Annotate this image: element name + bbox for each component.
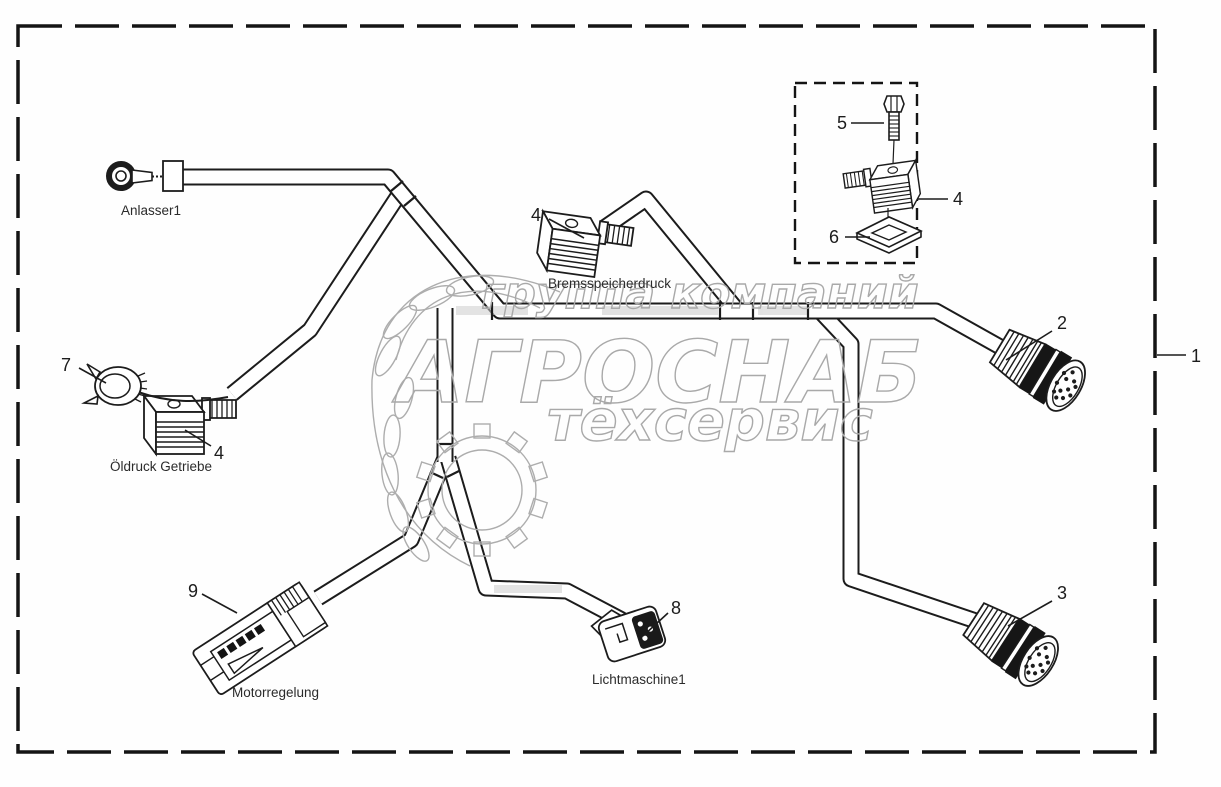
watermark-text-service: тёхсервис	[547, 389, 873, 454]
callout-3: 3	[1057, 583, 1067, 603]
callout-1: 1	[1191, 346, 1201, 366]
ring-terminal-anlasser	[109, 161, 183, 191]
callout-5: 5	[837, 113, 847, 133]
label-bremsspeicherdruck: Bremsspeicherdruck	[548, 276, 671, 291]
callout-7: 7	[61, 355, 71, 375]
label-motorregelung: Motorregelung	[232, 685, 319, 700]
detail-valve-connector-4	[843, 160, 922, 216]
parts-diagram-page: группа компаний АГРОСНАБ тёхсервис 1 2 3…	[0, 0, 1221, 787]
callout-6: 6	[829, 227, 839, 247]
callout-4-detail: 4	[953, 189, 963, 209]
label-anlasser1: Anlasser1	[121, 203, 181, 218]
detail-seal-6	[857, 217, 921, 253]
callout-2: 2	[1057, 313, 1067, 333]
callout-8: 8	[671, 598, 681, 618]
watermark-text-group-line: группа компаний	[481, 268, 918, 319]
protective-cap-7	[84, 364, 147, 405]
wiring-harness-diagram: группа компаний АГРОСНАБ тёхсервис 1 2 3…	[0, 0, 1221, 787]
round-connector-3	[958, 596, 1066, 693]
label-lichtmaschine1: Lichtmaschine1	[592, 672, 686, 687]
callout-4-bremsspeicherdruck: 4	[531, 205, 541, 225]
round-connector-2	[985, 322, 1093, 417]
label-oeldruck-getriebe: Öldruck Getriebe	[110, 459, 212, 474]
callout-9: 9	[188, 581, 198, 601]
detail-screw-5	[884, 96, 904, 164]
callout-4-oeldruck: 4	[214, 443, 224, 463]
